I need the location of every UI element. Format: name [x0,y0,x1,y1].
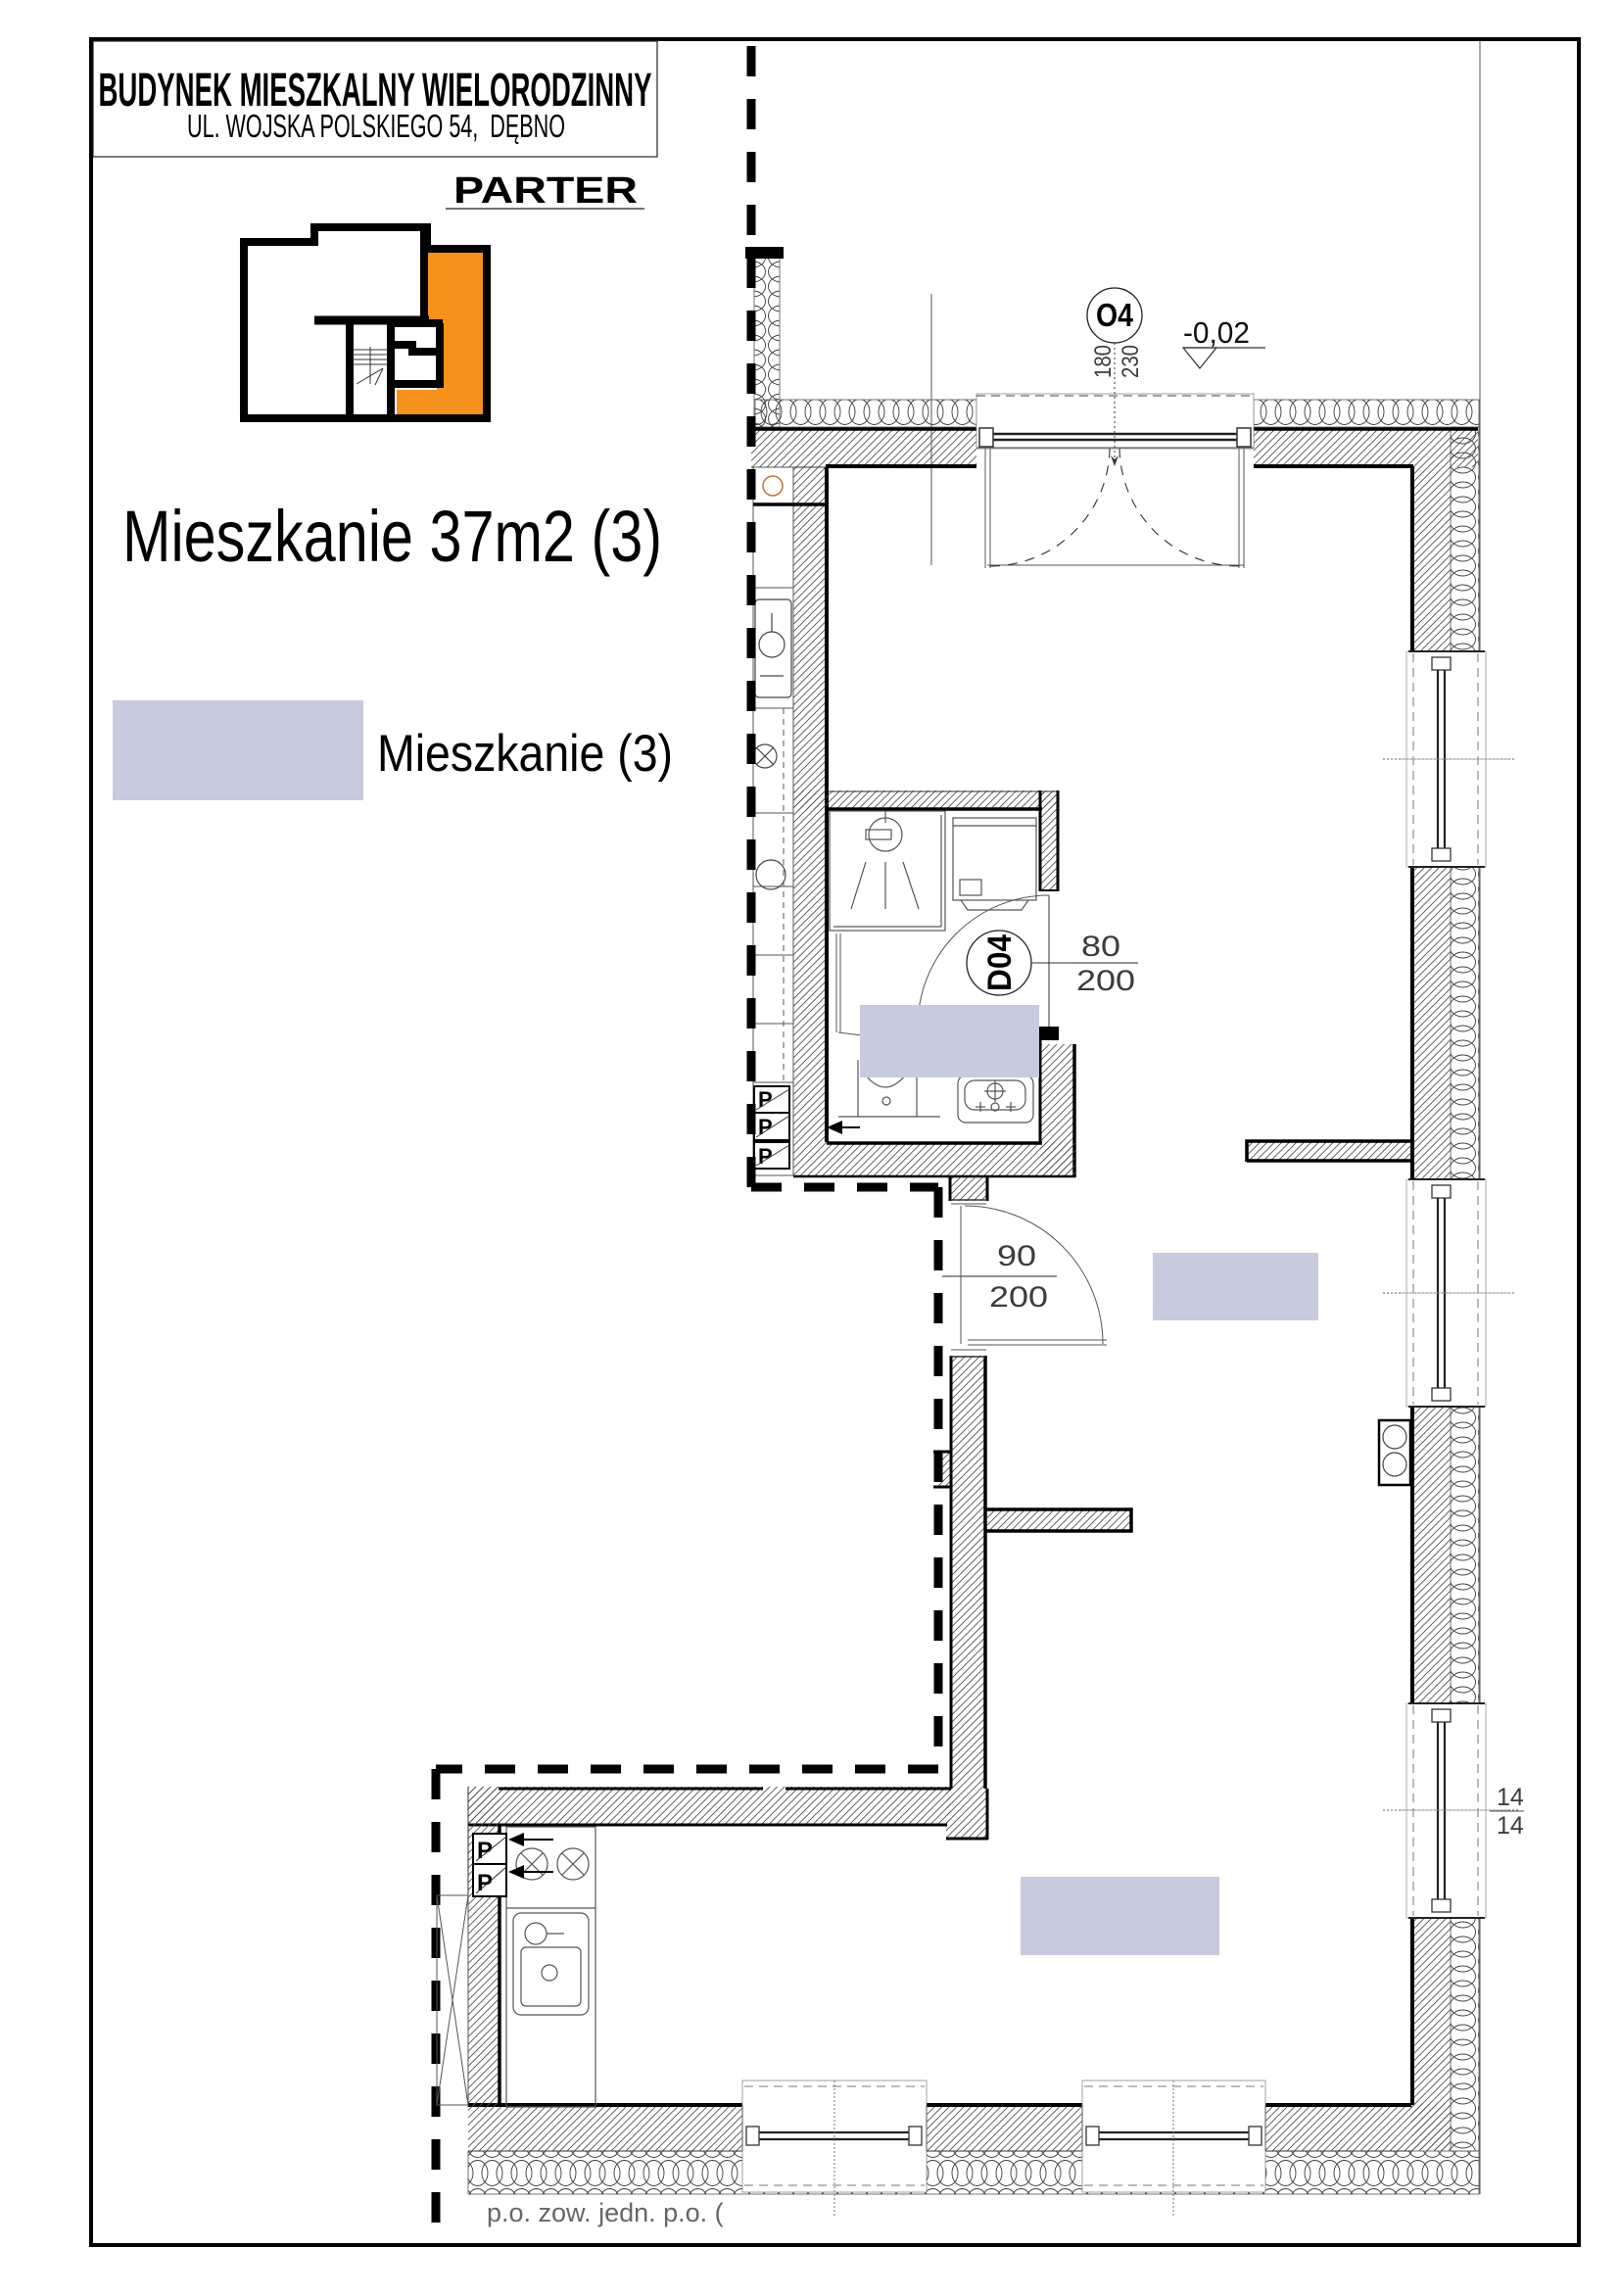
svg-text:UL. WOJSKA POLSKIEGO 54, DĘBN: UL. WOJSKA POLSKIEGO 54, DĘBNO [187,108,565,144]
svg-text:O4: O4 [1096,297,1134,333]
svg-text:P: P [758,1115,773,1139]
svg-text:p.o. zow. jedn. p.o. (: p.o. zow. jedn. p.o. ( [487,2198,724,2227]
svg-text:14: 14 [1497,1784,1524,1811]
svg-text:PARTER: PARTER [453,170,638,212]
svg-text:230: 230 [1118,345,1144,378]
svg-text:90: 90 [997,1240,1036,1272]
svg-text:D04: D04 [981,934,1019,991]
svg-text:Mieszkanie (3): Mieszkanie (3) [377,725,673,783]
svg-text:-0,02: -0,02 [1183,315,1250,350]
svg-text:180: 180 [1090,345,1117,378]
svg-text:P: P [477,1838,493,1864]
svg-text:14: 14 [1497,1812,1524,1840]
svg-text:200: 200 [1076,965,1135,997]
svg-text:200: 200 [989,1281,1048,1314]
svg-text:P: P [758,1087,773,1112]
svg-text:P: P [477,1870,493,1896]
svg-text:Mieszkanie 37m2 (3): Mieszkanie 37m2 (3) [122,496,662,577]
svg-text:80: 80 [1081,931,1120,963]
